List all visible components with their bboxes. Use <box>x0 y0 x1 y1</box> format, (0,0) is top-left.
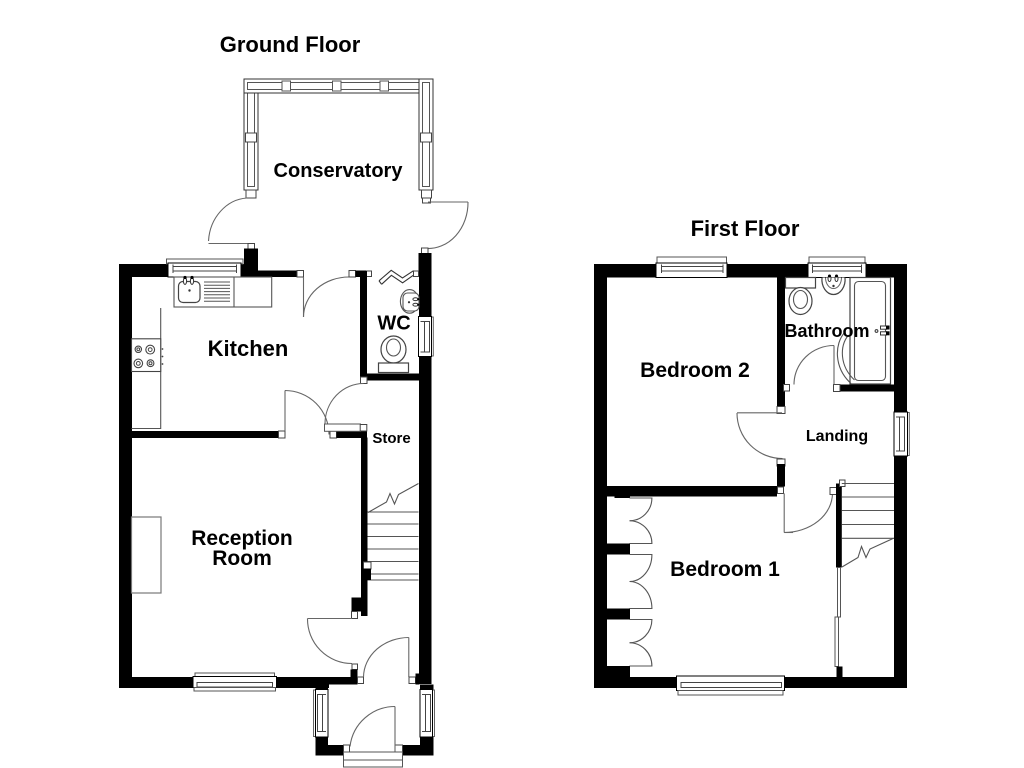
svg-text:Bedroom 2: Bedroom 2 <box>640 359 750 382</box>
svg-text:Bedroom 1: Bedroom 1 <box>670 558 780 581</box>
svg-text:Landing: Landing <box>806 428 868 445</box>
svg-text:Bathroom: Bathroom <box>785 321 870 341</box>
svg-text:Kitchen: Kitchen <box>208 336 289 361</box>
svg-text:Conservatory: Conservatory <box>274 160 404 182</box>
svg-text:Store: Store <box>372 430 410 447</box>
svg-text:Ground Floor: Ground Floor <box>220 32 361 57</box>
svg-text:Room: Room <box>212 547 272 570</box>
svg-text:First Floor: First Floor <box>691 216 800 241</box>
svg-text:WC: WC <box>377 313 410 335</box>
